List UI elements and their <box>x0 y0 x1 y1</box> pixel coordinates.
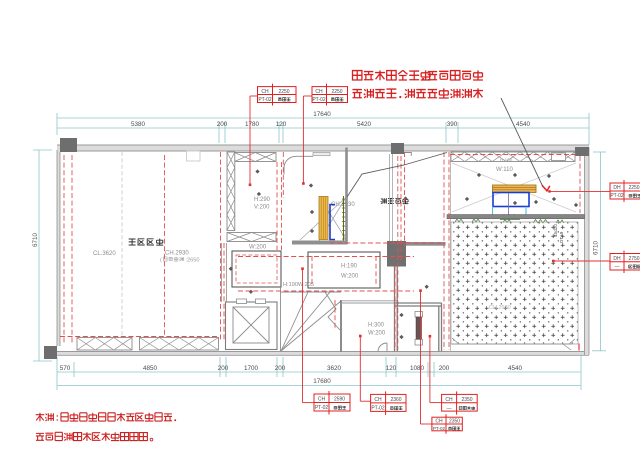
svg-text:V:200: V:200 <box>254 205 270 211</box>
svg-text:PT-02: PT-02 <box>371 406 385 412</box>
svg-text:1780: 1780 <box>245 121 260 128</box>
svg-text:4540: 4540 <box>516 121 531 128</box>
svg-text:W:200: W:200 <box>368 331 386 337</box>
svg-text:CH: CH <box>318 397 326 403</box>
svg-text:390: 390 <box>447 121 458 128</box>
svg-text:4850: 4850 <box>143 365 158 372</box>
svg-text:1080: 1080 <box>410 365 425 372</box>
svg-text:17680: 17680 <box>313 378 331 385</box>
svg-text:200: 200 <box>439 365 450 372</box>
svg-text:2350: 2350 <box>449 419 460 425</box>
svg-text:CH: CH <box>374 397 382 403</box>
svg-text:CH: CH <box>435 419 443 425</box>
svg-text:W:110: W:110 <box>496 167 513 173</box>
svg-text:H:290: H:290 <box>254 197 271 203</box>
svg-text:H:190W:205: H:190W:205 <box>283 282 314 288</box>
svg-text:CH: CH <box>445 397 453 403</box>
svg-text:H:100: H:100 <box>500 158 513 163</box>
svg-text:DH: DH <box>613 185 621 191</box>
svg-text:6710: 6710 <box>32 233 39 248</box>
svg-text:200: 200 <box>218 365 229 372</box>
svg-text:PT-02: PT-02 <box>610 193 624 199</box>
svg-text:3620: 3620 <box>327 365 342 372</box>
svg-text:2350: 2350 <box>461 397 472 403</box>
svg-text:17640: 17640 <box>313 111 331 118</box>
svg-text:45d20: 45d20 <box>553 224 558 237</box>
svg-text:1700: 1700 <box>244 365 259 372</box>
svg-text:5380: 5380 <box>131 121 146 128</box>
svg-text:2360: 2360 <box>390 397 401 403</box>
svg-text:6710: 6710 <box>593 241 600 256</box>
svg-text:DH: DH <box>613 256 621 262</box>
svg-text:PT-02: PT-02 <box>433 426 446 431</box>
svg-text:120: 120 <box>386 365 397 372</box>
svg-text::2650: :2650 <box>186 258 200 264</box>
svg-text:CH.2930: CH.2930 <box>489 305 511 311</box>
svg-text:2590: 2590 <box>334 397 345 403</box>
svg-text:PT-02: PT-02 <box>258 97 272 103</box>
svg-text:5420: 5420 <box>357 121 372 128</box>
svg-text:PT-02: PT-02 <box>315 405 329 411</box>
svg-text:H:300: H:300 <box>368 323 385 329</box>
svg-text:W:200: W:200 <box>249 245 267 251</box>
svg-text:W:200: W:200 <box>341 274 359 280</box>
svg-text:DT+9: DT+9 <box>559 231 564 243</box>
svg-text:(: ( <box>160 258 162 264</box>
svg-text:CH: CH <box>315 89 323 95</box>
svg-text:2250: 2250 <box>278 89 289 95</box>
svg-text:—: — <box>447 405 452 411</box>
svg-text:CH.2930: CH.2930 <box>165 251 189 257</box>
svg-text:200: 200 <box>275 365 286 372</box>
svg-text:4540: 4540 <box>508 365 523 372</box>
svg-text:570: 570 <box>60 365 71 372</box>
svg-text:H:190: H:190 <box>341 264 358 270</box>
svg-text:2250: 2250 <box>628 185 639 191</box>
svg-text:120: 120 <box>276 121 287 128</box>
svg-text:—: — <box>615 264 620 270</box>
svg-text:CH: CH <box>261 89 269 95</box>
svg-text:200: 200 <box>217 121 228 128</box>
svg-text:2750: 2750 <box>628 256 639 262</box>
svg-text:CL.3620: CL.3620 <box>93 251 116 257</box>
svg-text:PT-02: PT-02 <box>312 97 326 103</box>
svg-text:2250: 2250 <box>331 89 342 95</box>
